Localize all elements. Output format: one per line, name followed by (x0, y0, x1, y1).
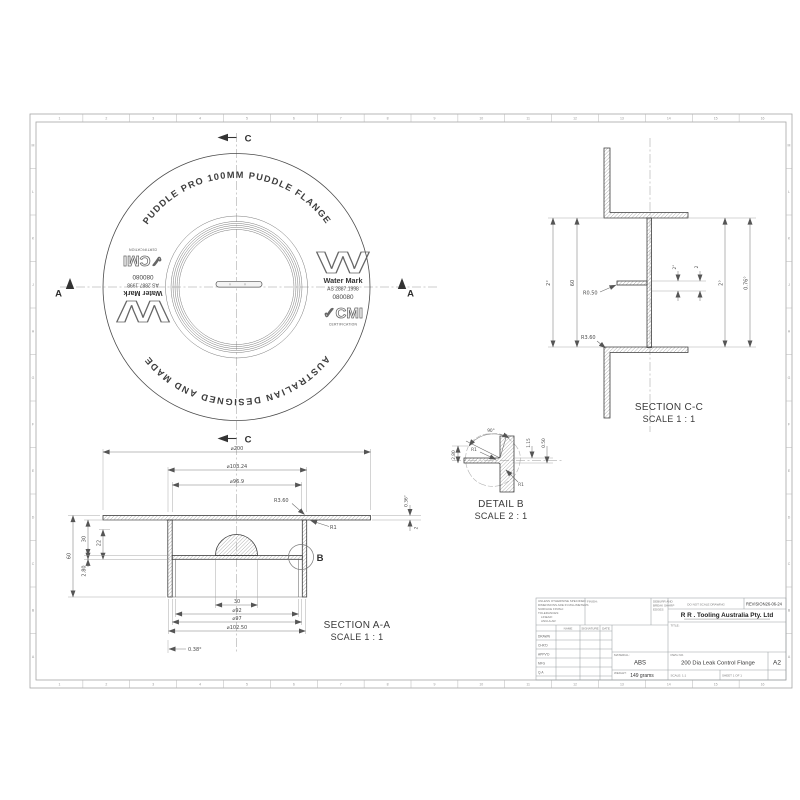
title-label: TITLE: (671, 624, 680, 628)
svg-text:9: 9 (433, 683, 435, 687)
svg-text:C: C (245, 435, 252, 446)
arc-text-bottom: AUSTRALIAN DESIGNED AND MADE (142, 354, 332, 407)
svg-text:6: 6 (293, 683, 295, 687)
aa-right-skirt (302, 520, 306, 597)
revision-text: REVISION26-06-24 (746, 602, 783, 607)
top-view-flange: PUDDLE PRO 100MM PUDDLE FLANGE AUSTRALIA… (55, 133, 438, 446)
svg-text:6: 6 (293, 117, 295, 121)
svg-text:ANGULAR:: ANGULAR: (541, 619, 557, 623)
svg-text:Q.A: Q.A (538, 671, 544, 675)
svg-text:12: 12 (573, 683, 577, 687)
svg-text:MFG: MFG (538, 662, 546, 666)
svg-text:B: B (32, 608, 35, 612)
svg-text:⌀92: ⌀92 (232, 608, 241, 614)
sheet-frame: 1122334455667788991010111112121313141415… (30, 114, 792, 688)
cc-web (647, 218, 652, 348)
svg-text:NAME: NAME (564, 626, 573, 630)
svg-text:H: H (32, 329, 35, 333)
detail-b-part (464, 436, 514, 492)
svg-text:J: J (788, 283, 790, 287)
svg-text:A: A (407, 289, 414, 300)
section-arrow-icon (66, 278, 74, 289)
section-marker-c-top: C (218, 134, 252, 145)
svg-text:K: K (32, 236, 35, 240)
svg-text:M: M (32, 143, 35, 147)
zone-strips: 1122334455667788991010111112121313141415… (30, 114, 792, 688)
section-arrow-icon (218, 134, 229, 141)
svg-text:15: 15 (714, 117, 718, 121)
svg-text:E: E (32, 469, 35, 473)
svg-text:90°: 90° (487, 428, 495, 434)
aa-mid-shelf (172, 556, 302, 560)
detail-b-view: 90° R1 R1 1.15 0.50 2.80 DETAIL B SCALE … (451, 428, 562, 521)
svg-text:0.36°: 0.36° (404, 495, 410, 507)
watermark-logo: W (317, 245, 370, 280)
company-name: R R . Tooling Australia Pty. Ltd (681, 612, 774, 619)
svg-text:J: J (32, 283, 34, 287)
svg-text:60: 60 (67, 553, 73, 559)
svg-text:0.76°: 0.76° (744, 276, 750, 290)
svg-text:CHK'D: CHK'D (538, 644, 548, 648)
svg-text:30: 30 (82, 536, 88, 542)
svg-text:5: 5 (246, 117, 248, 121)
svg-text:D: D (788, 515, 791, 519)
svg-text:F: F (788, 422, 790, 426)
svg-text:7: 7 (340, 117, 342, 121)
svg-text:2: 2 (105, 117, 107, 121)
svg-text:14: 14 (667, 683, 671, 687)
svg-text:4: 4 (199, 683, 201, 687)
svg-text:11: 11 (526, 117, 530, 121)
tolerance-note: UNLESS OTHERWISE SPECIFIED: DIMENSIONS A… (538, 599, 589, 623)
weight-value: 149 grams (630, 673, 654, 679)
section-aa-scale: SCALE 1 : 1 (331, 632, 384, 642)
svg-text:SIGNATURE: SIGNATURE (581, 626, 598, 630)
deburr-note: DEBURR AND BREAK SHARP EDGES (653, 600, 674, 612)
svg-text:EDGES: EDGES (653, 608, 664, 612)
svg-text:2°: 2° (719, 280, 725, 286)
svg-text:B: B (788, 608, 791, 612)
svg-text:15: 15 (714, 683, 718, 687)
svg-text:13: 13 (620, 117, 624, 121)
scale-label: SCALE: 1:1 (671, 674, 687, 678)
svg-text:8: 8 (387, 117, 389, 121)
svg-text:2: 2 (414, 526, 420, 529)
svg-text:7: 7 (340, 683, 342, 687)
leader-r360: R3.60 (581, 335, 596, 341)
cc-mid-tab (617, 281, 647, 285)
section-marker-a-left: A (55, 278, 74, 300)
svg-text:C: C (788, 562, 791, 566)
svg-text:G: G (788, 376, 791, 380)
svg-text:16: 16 (761, 117, 765, 121)
svg-text:13: 13 (620, 683, 624, 687)
svg-text:10: 10 (479, 117, 483, 121)
detail-b-callout-label: B (317, 553, 324, 564)
section-cc-title: SECTION C-C (635, 402, 703, 413)
aa-dome (216, 535, 258, 556)
svg-text:11: 11 (526, 683, 530, 687)
svg-text:⌀103.24: ⌀103.24 (227, 464, 248, 470)
svg-text:C: C (32, 562, 35, 566)
svg-text:L: L (32, 190, 34, 194)
svg-text:A: A (55, 289, 62, 300)
svg-text:K: K (788, 236, 791, 240)
cmi-mark: ✓CMI (323, 305, 363, 322)
watermark-block: W Water Mark AS 2887:1998 080080 ✓CMI CE… (317, 245, 370, 327)
weight-label: WEIGHT: (614, 671, 627, 675)
watermark-standard: AS 2887:1998 (327, 287, 359, 293)
svg-text:2°: 2° (672, 265, 678, 270)
aa-top-flange (103, 516, 371, 521)
cad-drawing-canvas: 1122334455667788991010111112121313141415… (0, 0, 800, 800)
svg-text:1: 1 (58, 117, 60, 121)
svg-text:9: 9 (433, 117, 435, 121)
svg-text:C: C (245, 134, 252, 145)
svg-text:A: A (788, 655, 791, 659)
aa-left-skirt (168, 520, 172, 597)
material-label: MATERIAL: (614, 653, 630, 657)
svg-text:16: 16 (761, 683, 765, 687)
drawing-sheet-page: 1122334455667788991010111112121313141415… (0, 0, 800, 800)
arc-text-top: PUDDLE PRO 100MM PUDDLE FLANGE (141, 170, 333, 226)
material-value: ABS (634, 661, 646, 667)
svg-text:⌀102.50: ⌀102.50 (227, 625, 248, 631)
section-aa-view: B ⌀200 ⌀103.24 ⌀96.9 60 30 (67, 446, 422, 653)
section-marker-c-bottom: C (218, 435, 252, 446)
svg-text:14: 14 (667, 117, 671, 121)
svg-text:0.38°: 0.38° (188, 647, 202, 653)
svg-text:3: 3 (152, 117, 154, 121)
svg-text:2: 2 (694, 265, 700, 268)
svg-text:A: A (32, 655, 35, 659)
svg-text:F: F (32, 422, 34, 426)
center-slot (216, 281, 262, 287)
section-cc-scale: SCALE 1 : 1 (643, 414, 696, 424)
svg-text:4: 4 (199, 117, 201, 121)
svg-text:2.80: 2.80 (451, 450, 457, 460)
svg-text:0.50: 0.50 (541, 438, 547, 448)
svg-text:DRAWN: DRAWN (538, 635, 551, 639)
svg-text:1: 1 (58, 683, 60, 687)
do-not-scale-note: DO NOT SCALE DRAWING (687, 603, 725, 607)
svg-text:2.80: 2.80 (82, 565, 88, 576)
section-arrow-icon (398, 278, 406, 289)
section-aa-title: SECTION A-A (324, 620, 391, 631)
svg-text:⌀97: ⌀97 (232, 616, 241, 622)
leader-r360-aa: R3.60 (274, 498, 289, 504)
svg-text:H: H (788, 329, 791, 333)
detail-b-title: DETAIL B (478, 499, 524, 510)
svg-text:DATE: DATE (602, 626, 610, 630)
svg-text:⌀96.9: ⌀96.9 (230, 479, 244, 485)
section-cc-view: 2° 60 2° 0.76° 2° 2 R0.50 R3.60 SECTION … (546, 138, 756, 432)
svg-text:22: 22 (97, 540, 103, 546)
svg-text:5: 5 (246, 683, 248, 687)
watermark-name: Water Mark (323, 276, 363, 285)
watermark-licence: 080080 (332, 294, 354, 301)
detail-b-scale: SCALE 2 : 1 (475, 511, 528, 521)
section-marker-a-right: A (398, 278, 414, 300)
svg-text:M: M (788, 143, 791, 147)
cc-top-flange (604, 148, 688, 218)
svg-text:1.15: 1.15 (526, 438, 532, 448)
svg-text:12: 12 (573, 117, 577, 121)
section-arrow-icon (218, 435, 229, 442)
sheet-size: A2 (773, 660, 781, 667)
drawing-title: 200 Dia Leak Control Flange (681, 661, 755, 667)
svg-text:D: D (32, 515, 35, 519)
cmi-certification-label: CERTIFICATION (329, 323, 358, 327)
svg-text:APPV'D: APPV'D (538, 653, 550, 657)
svg-text:10: 10 (479, 683, 483, 687)
svg-text:2: 2 (105, 683, 107, 687)
svg-text:30: 30 (234, 599, 240, 605)
sheet-label: SHEET 1 OF 1 (722, 674, 742, 678)
finish-label: FINISH: (587, 600, 598, 604)
svg-text:60: 60 (570, 280, 576, 286)
svg-text:3: 3 (152, 683, 154, 687)
svg-text:E: E (788, 469, 791, 473)
leader-r1-aa: R1 (330, 525, 337, 531)
svg-text:⌀200: ⌀200 (231, 446, 244, 452)
svg-text:R1: R1 (518, 482, 524, 488)
svg-text:8: 8 (387, 683, 389, 687)
svg-text:L: L (788, 190, 790, 194)
company-address-line (684, 619, 770, 620)
title-block: UNLESS OTHERWISE SPECIFIED: DIMENSIONS A… (536, 598, 786, 680)
svg-text:2°: 2° (546, 280, 552, 286)
dwg-no-label: DWG NO. (671, 653, 685, 657)
svg-text:G: G (32, 376, 35, 380)
leader-r050: R0.50 (583, 291, 598, 297)
svg-text:R1: R1 (471, 447, 477, 453)
